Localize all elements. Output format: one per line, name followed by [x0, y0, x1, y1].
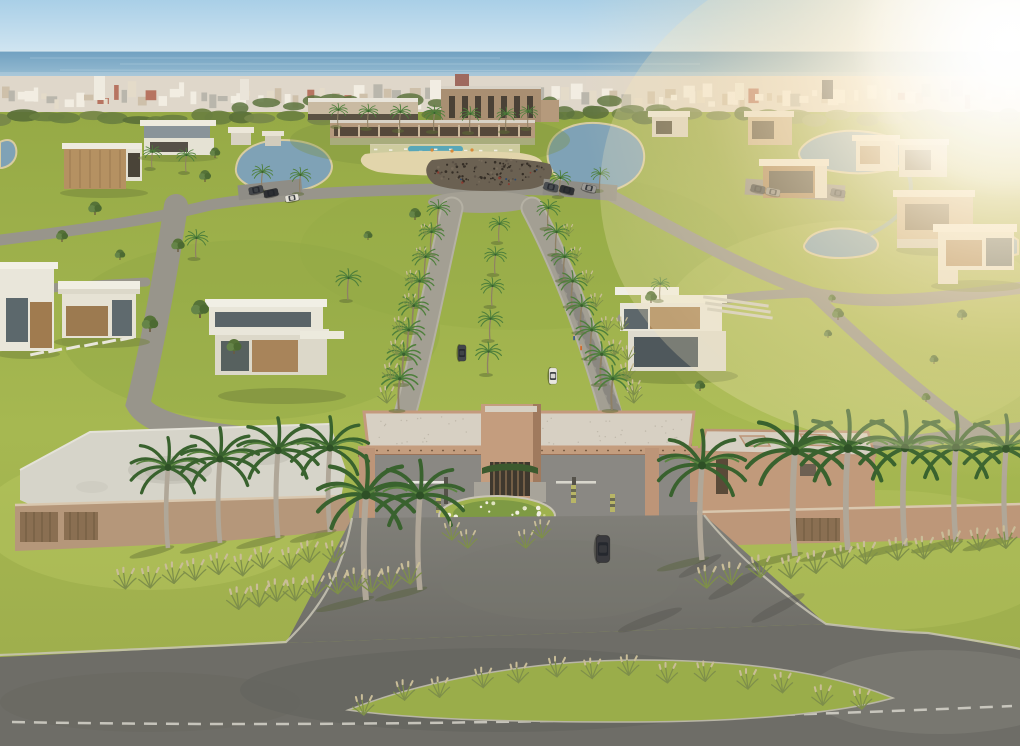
- villa-white-upleft: [138, 120, 218, 162]
- car: [594, 534, 610, 564]
- development-aerial-render: [0, 0, 1020, 746]
- car: [456, 344, 466, 362]
- villa-left-edge: [0, 262, 60, 359]
- villa-wood-upleft: [60, 143, 148, 198]
- sun-core: [820, 0, 1020, 230]
